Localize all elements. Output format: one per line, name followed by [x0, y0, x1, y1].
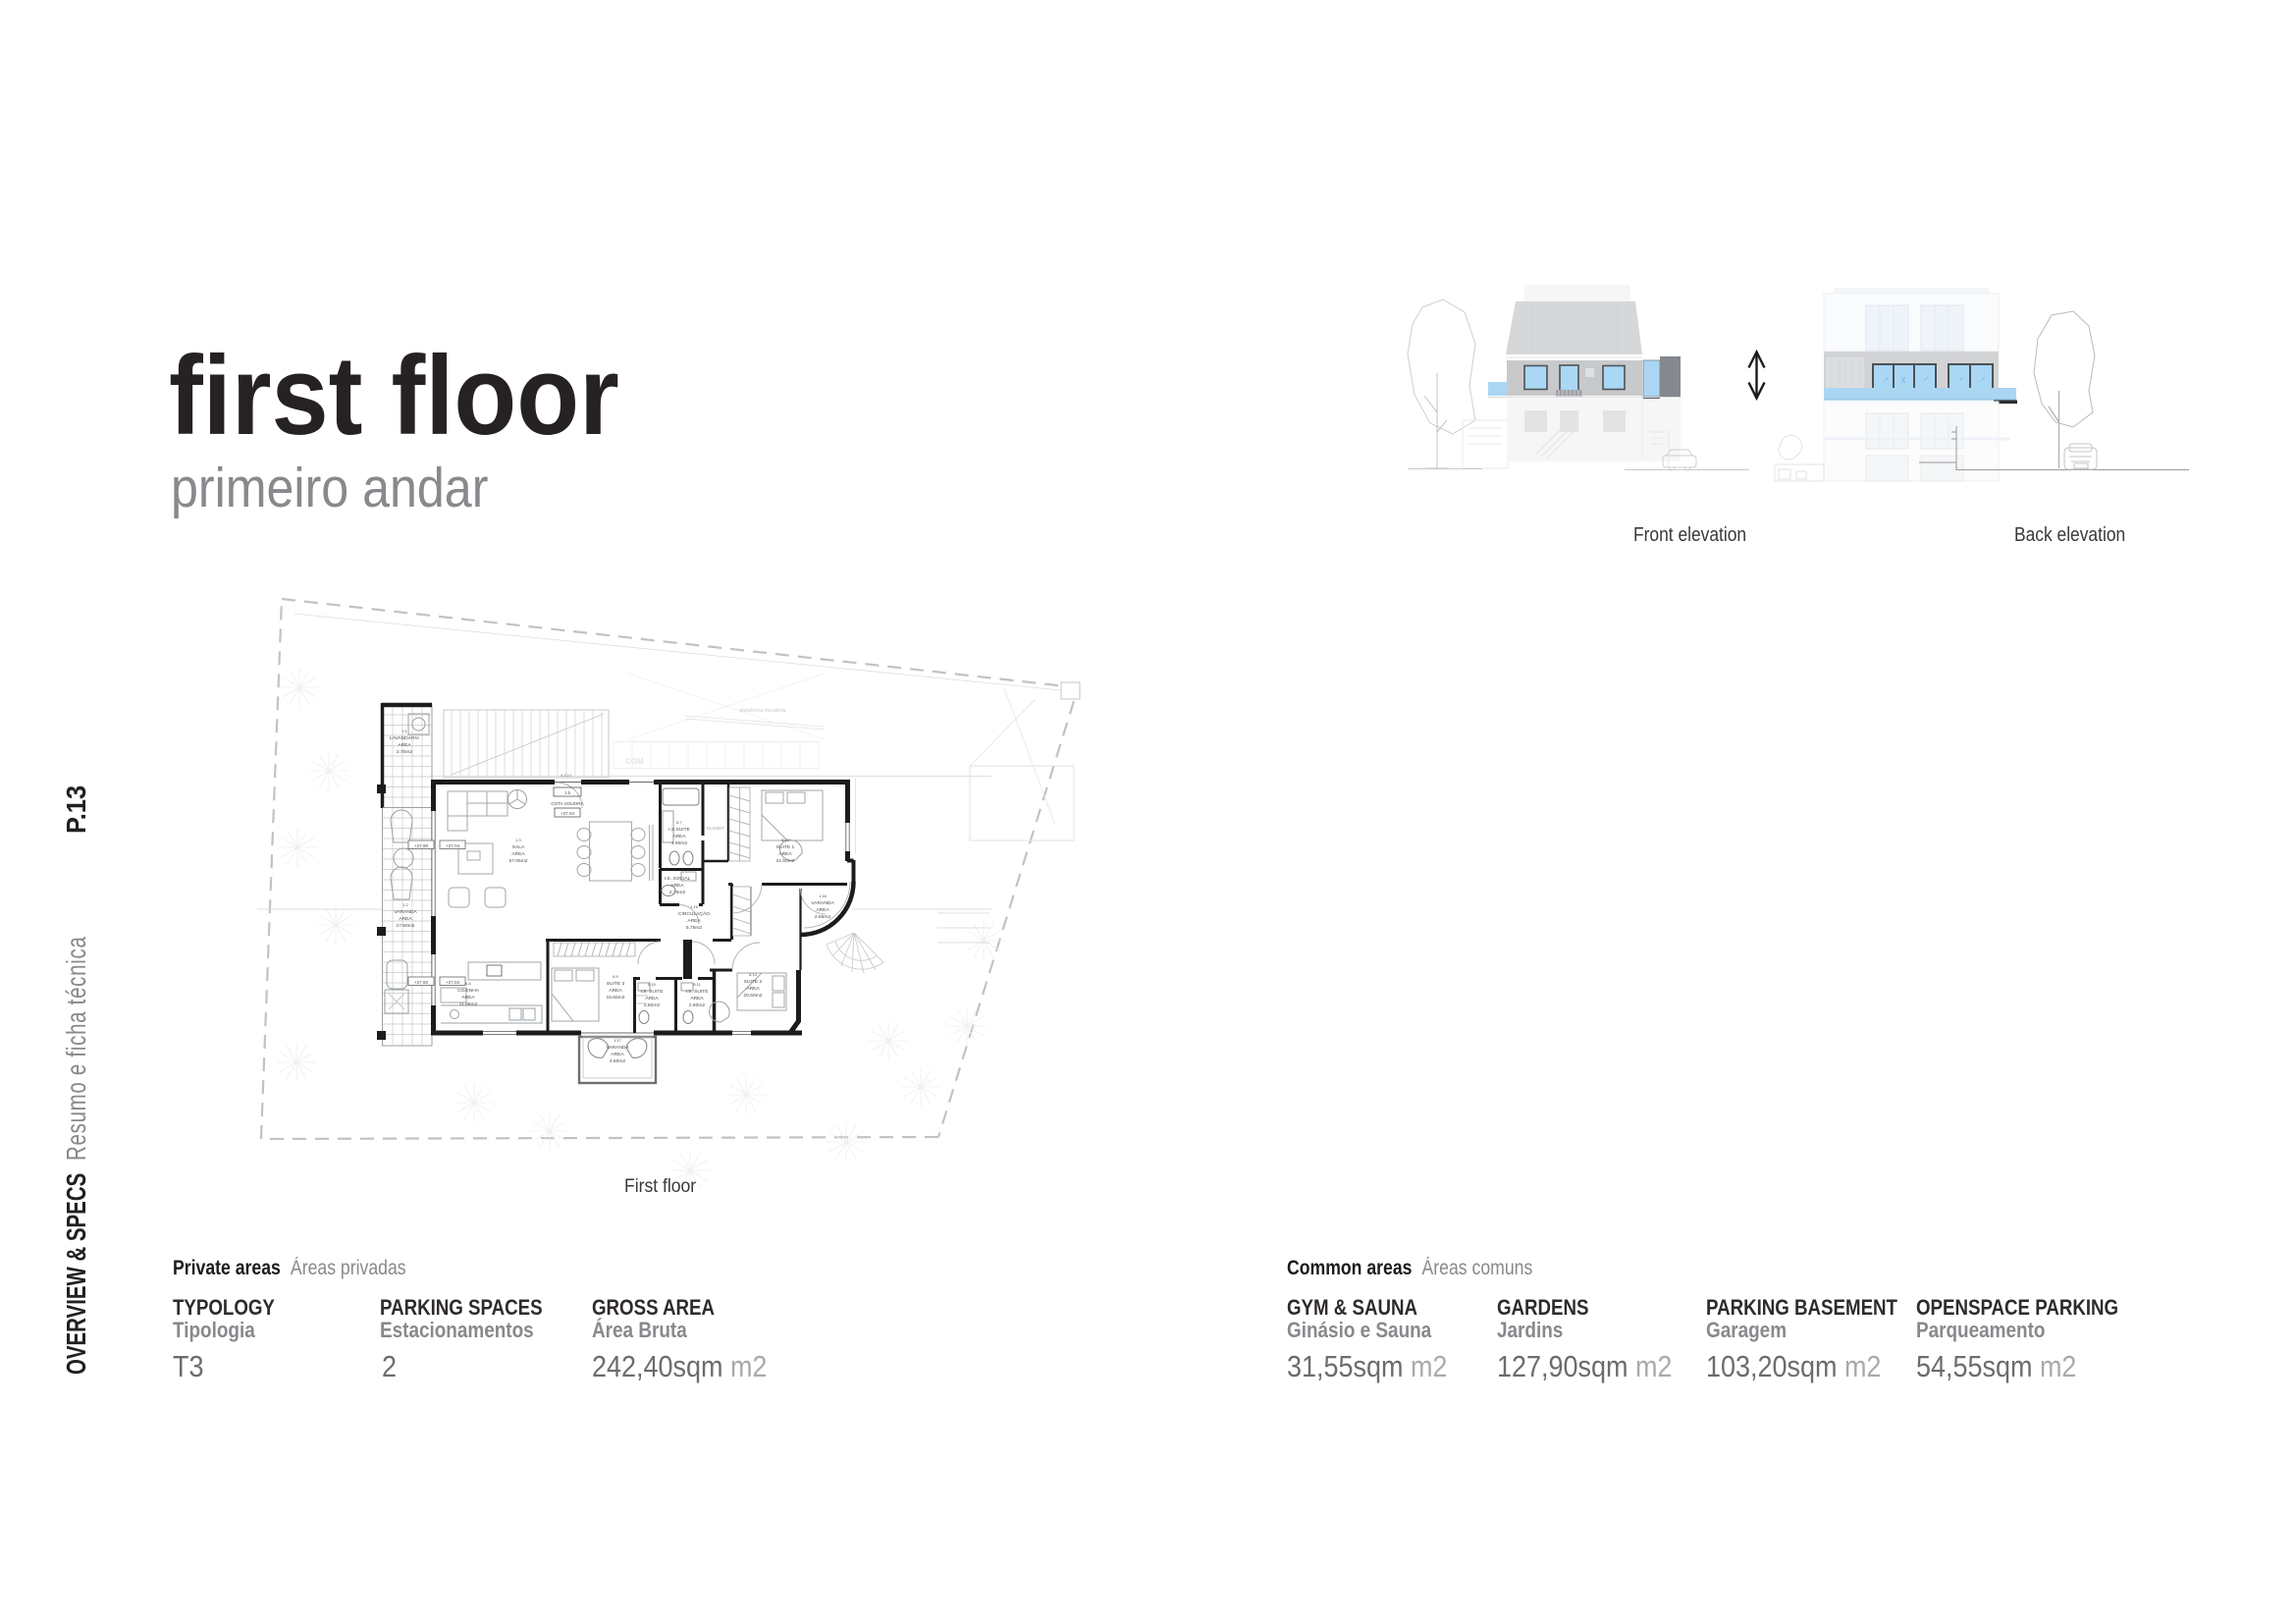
svg-text:AREA: AREA — [645, 996, 659, 1001]
svg-text:SUITE 2: SUITE 2 — [744, 979, 763, 985]
svg-text:2.70m2: 2.70m2 — [397, 749, 413, 755]
svg-text:CLOSET: CLOSET — [707, 826, 725, 831]
svg-text:15.65m2: 15.65m2 — [606, 995, 624, 1001]
svg-text:4.50m2: 4.50m2 — [610, 1058, 626, 1064]
svg-text:6.7: 6.7 — [676, 820, 681, 825]
svg-text:2.80m2: 2.80m2 — [689, 1002, 706, 1008]
svg-text:COM: COM — [625, 757, 644, 766]
svg-text:AREA: AREA — [672, 834, 686, 839]
svg-text:1.3: 1.3 — [515, 838, 520, 842]
svg-text:AREA: AREA — [399, 916, 412, 922]
svg-text:AREA: AREA — [511, 851, 525, 857]
svg-text:+27.60: +27.60 — [414, 980, 429, 985]
svg-text:I.S. SUITE: I.S. SUITE — [685, 989, 709, 995]
svg-text:SUITE 3: SUITE 3 — [607, 981, 625, 987]
svg-text:1.16: 1.16 — [690, 904, 698, 909]
svg-text:6.10: 6.10 — [648, 982, 656, 987]
svg-text:VARANDA: VARANDA — [606, 1045, 629, 1051]
svg-text:AREA: AREA — [690, 996, 704, 1001]
svg-text:SALA: SALA — [512, 844, 525, 850]
svg-text:4.90m2: 4.90m2 — [671, 840, 688, 846]
svg-text:AREA: AREA — [398, 742, 411, 748]
svg-text:4 3 2 1: 4 3 2 1 — [561, 774, 572, 778]
svg-text:I.S. SOCIAL: I.S. SOCIAL — [665, 876, 691, 882]
svg-text:1.18: 1.18 — [819, 893, 827, 898]
svg-text:+27.04: +27.04 — [446, 843, 460, 848]
svg-text:I.S.SUITE: I.S.SUITE — [668, 827, 690, 833]
svg-text:20.50m2: 20.50m2 — [743, 993, 762, 999]
svg-text:11.65m2: 11.65m2 — [459, 1001, 478, 1007]
svg-text:1.5: 1.5 — [564, 790, 570, 795]
svg-text:AREA: AREA — [461, 995, 475, 1001]
svg-text:AREA: AREA — [611, 1052, 624, 1057]
svg-text:6.11: 6.11 — [693, 982, 700, 987]
svg-text:+27.04: +27.04 — [561, 811, 575, 816]
svg-text:+27.60: +27.60 — [414, 843, 429, 848]
svg-text:SUITE 1: SUITE 1 — [776, 844, 795, 850]
svg-text:5.75m2: 5.75m2 — [686, 925, 703, 931]
svg-text:LAVANDARIA: LAVANDARIA — [390, 735, 420, 741]
svg-text:AREA: AREA — [746, 986, 760, 992]
svg-text:VARANDA: VARANDA — [811, 900, 834, 906]
svg-text:CIRCULAÇÃO: CIRCULAÇÃO — [678, 910, 710, 917]
svg-text:VARANDA: VARANDA — [394, 909, 417, 915]
svg-text:AREA: AREA — [687, 918, 701, 924]
svg-text:AREA: AREA — [816, 907, 829, 913]
svg-text:1.2: 1.2 — [402, 902, 407, 907]
svg-text:AREA: AREA — [609, 988, 622, 994]
svg-text:plataforma elevatória: plataforma elevatória — [740, 708, 786, 714]
svg-text:+27.04: +27.04 — [446, 980, 460, 985]
svg-text:AREA: AREA — [670, 883, 684, 889]
svg-text:2.75m2: 2.75m2 — [669, 890, 686, 895]
svg-text:6.12: 6.12 — [781, 838, 789, 842]
svg-text:COZINHA: COZINHA — [457, 988, 480, 994]
svg-text:COTA SOLEIRA: COTA SOLEIRA — [551, 801, 584, 806]
svg-text:27.50m2: 27.50m2 — [396, 923, 414, 929]
svg-text:6.4: 6.4 — [465, 981, 471, 986]
svg-text:AREA: AREA — [778, 851, 792, 857]
svg-text:21.50m2: 21.50m2 — [775, 858, 794, 864]
svg-text:2.85m2: 2.85m2 — [815, 914, 831, 920]
svg-text:1.17: 1.17 — [614, 1038, 621, 1043]
svg-text:1.1: 1.1 — [401, 729, 406, 733]
svg-text:6.9: 6.9 — [613, 974, 617, 979]
svg-text:57.05m2: 57.05m2 — [508, 858, 527, 864]
svg-text:I.S. SUITE: I.S. SUITE — [640, 989, 664, 995]
svg-text:2.80m2: 2.80m2 — [644, 1002, 661, 1008]
svg-text:6.14: 6.14 — [749, 972, 757, 977]
